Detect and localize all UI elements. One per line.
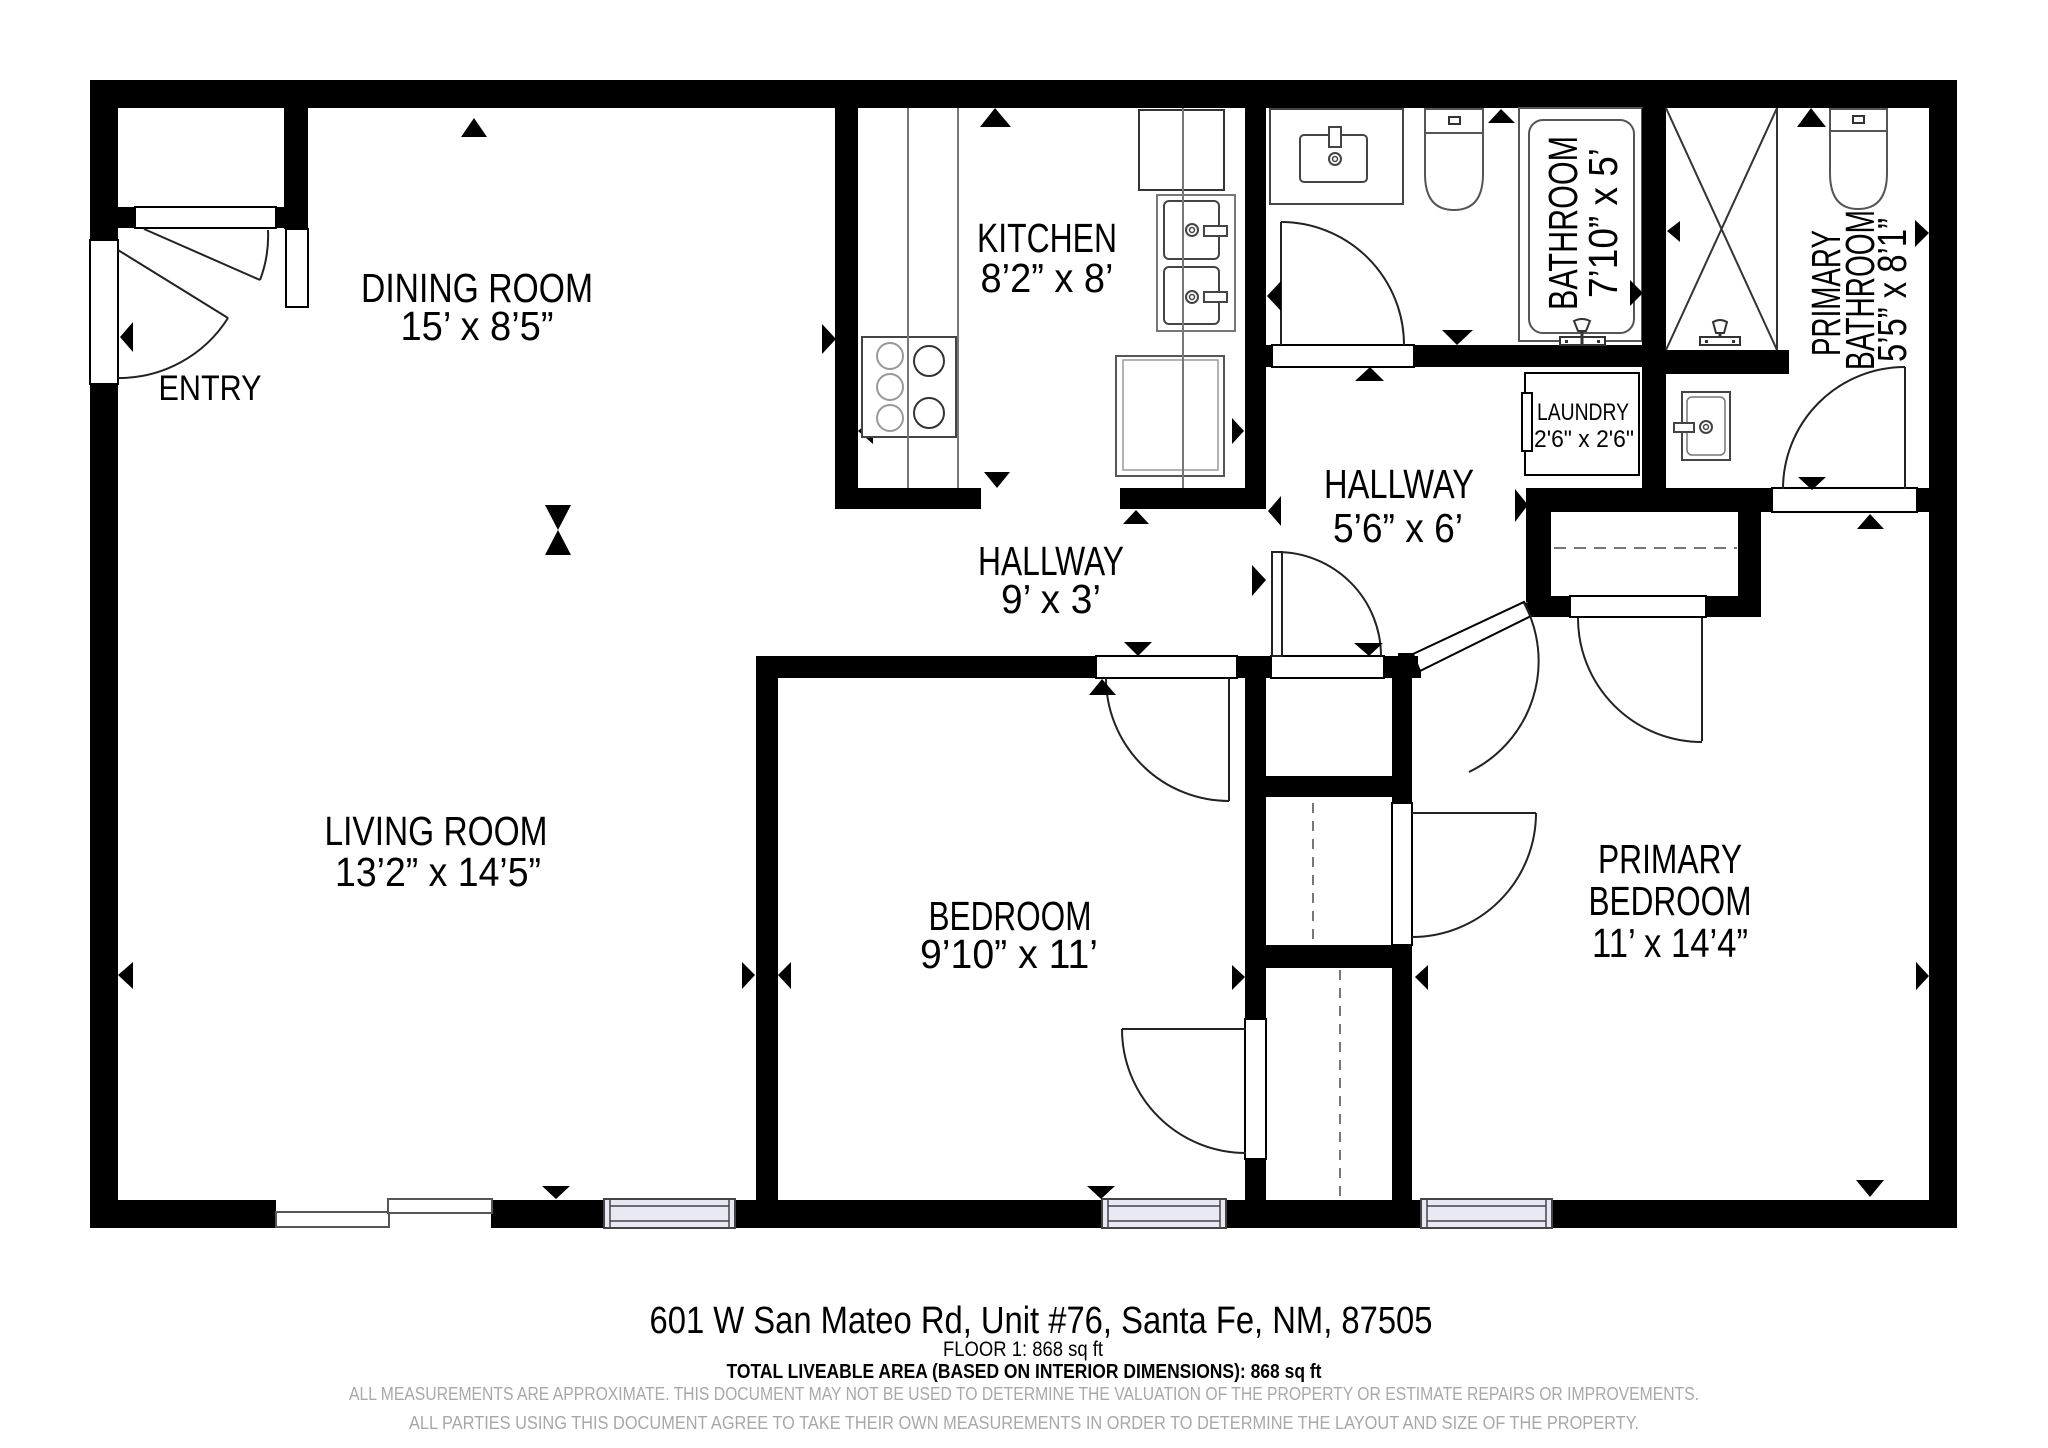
svg-text:ENTRY: ENTRY [159,369,262,408]
svg-text:ALL PARTIES USING THIS DOCUMEN: ALL PARTIES USING THIS DOCUMENT AGREE TO… [409,1413,1639,1433]
svg-text:2'6" x 2'6": 2'6" x 2'6" [1534,426,1634,453]
svg-text:BEDROOM: BEDROOM [1589,878,1752,924]
svg-text:PRIMARY: PRIMARY [1598,836,1742,882]
svg-text:601 W San Mateo Rd, Unit #76,: 601 W San Mateo Rd, Unit #76, Santa Fe, … [650,1300,1433,1342]
svg-text:LIVING ROOM: LIVING ROOM [325,808,548,854]
svg-text:9’10” x 11’: 9’10” x 11’ [920,931,1098,977]
svg-text:15’ x 8’5”: 15’ x 8’5” [401,303,554,349]
svg-text:LAUNDRY: LAUNDRY [1537,399,1629,426]
svg-text:TOTAL LIVEABLE AREA (BASED ON: TOTAL LIVEABLE AREA (BASED ON INTERIOR D… [727,1361,1322,1383]
svg-text:13’2” x 14’5”: 13’2” x 14’5” [335,849,541,895]
svg-text:ALL MEASUREMENTS ARE APPROXIMA: ALL MEASUREMENTS ARE APPROXIMATE. THIS D… [349,1384,1699,1404]
svg-text:7’10” x 5’: 7’10” x 5’ [1580,148,1626,298]
svg-text:FLOOR 1: 868 sq ft: FLOOR 1: 868 sq ft [943,1338,1103,1361]
svg-text:11’ x 14’4”: 11’ x 14’4” [1592,920,1748,966]
svg-text:5’6” x 6’: 5’6” x 6’ [1333,505,1463,551]
svg-text:5’5” x 8’1”: 5’5” x 8’1” [1869,218,1915,362]
svg-text:8’2” x 8’: 8’2” x 8’ [981,255,1114,301]
svg-text:9’ x 3’: 9’ x 3’ [1001,576,1101,622]
svg-text:HALLWAY: HALLWAY [1324,461,1474,507]
